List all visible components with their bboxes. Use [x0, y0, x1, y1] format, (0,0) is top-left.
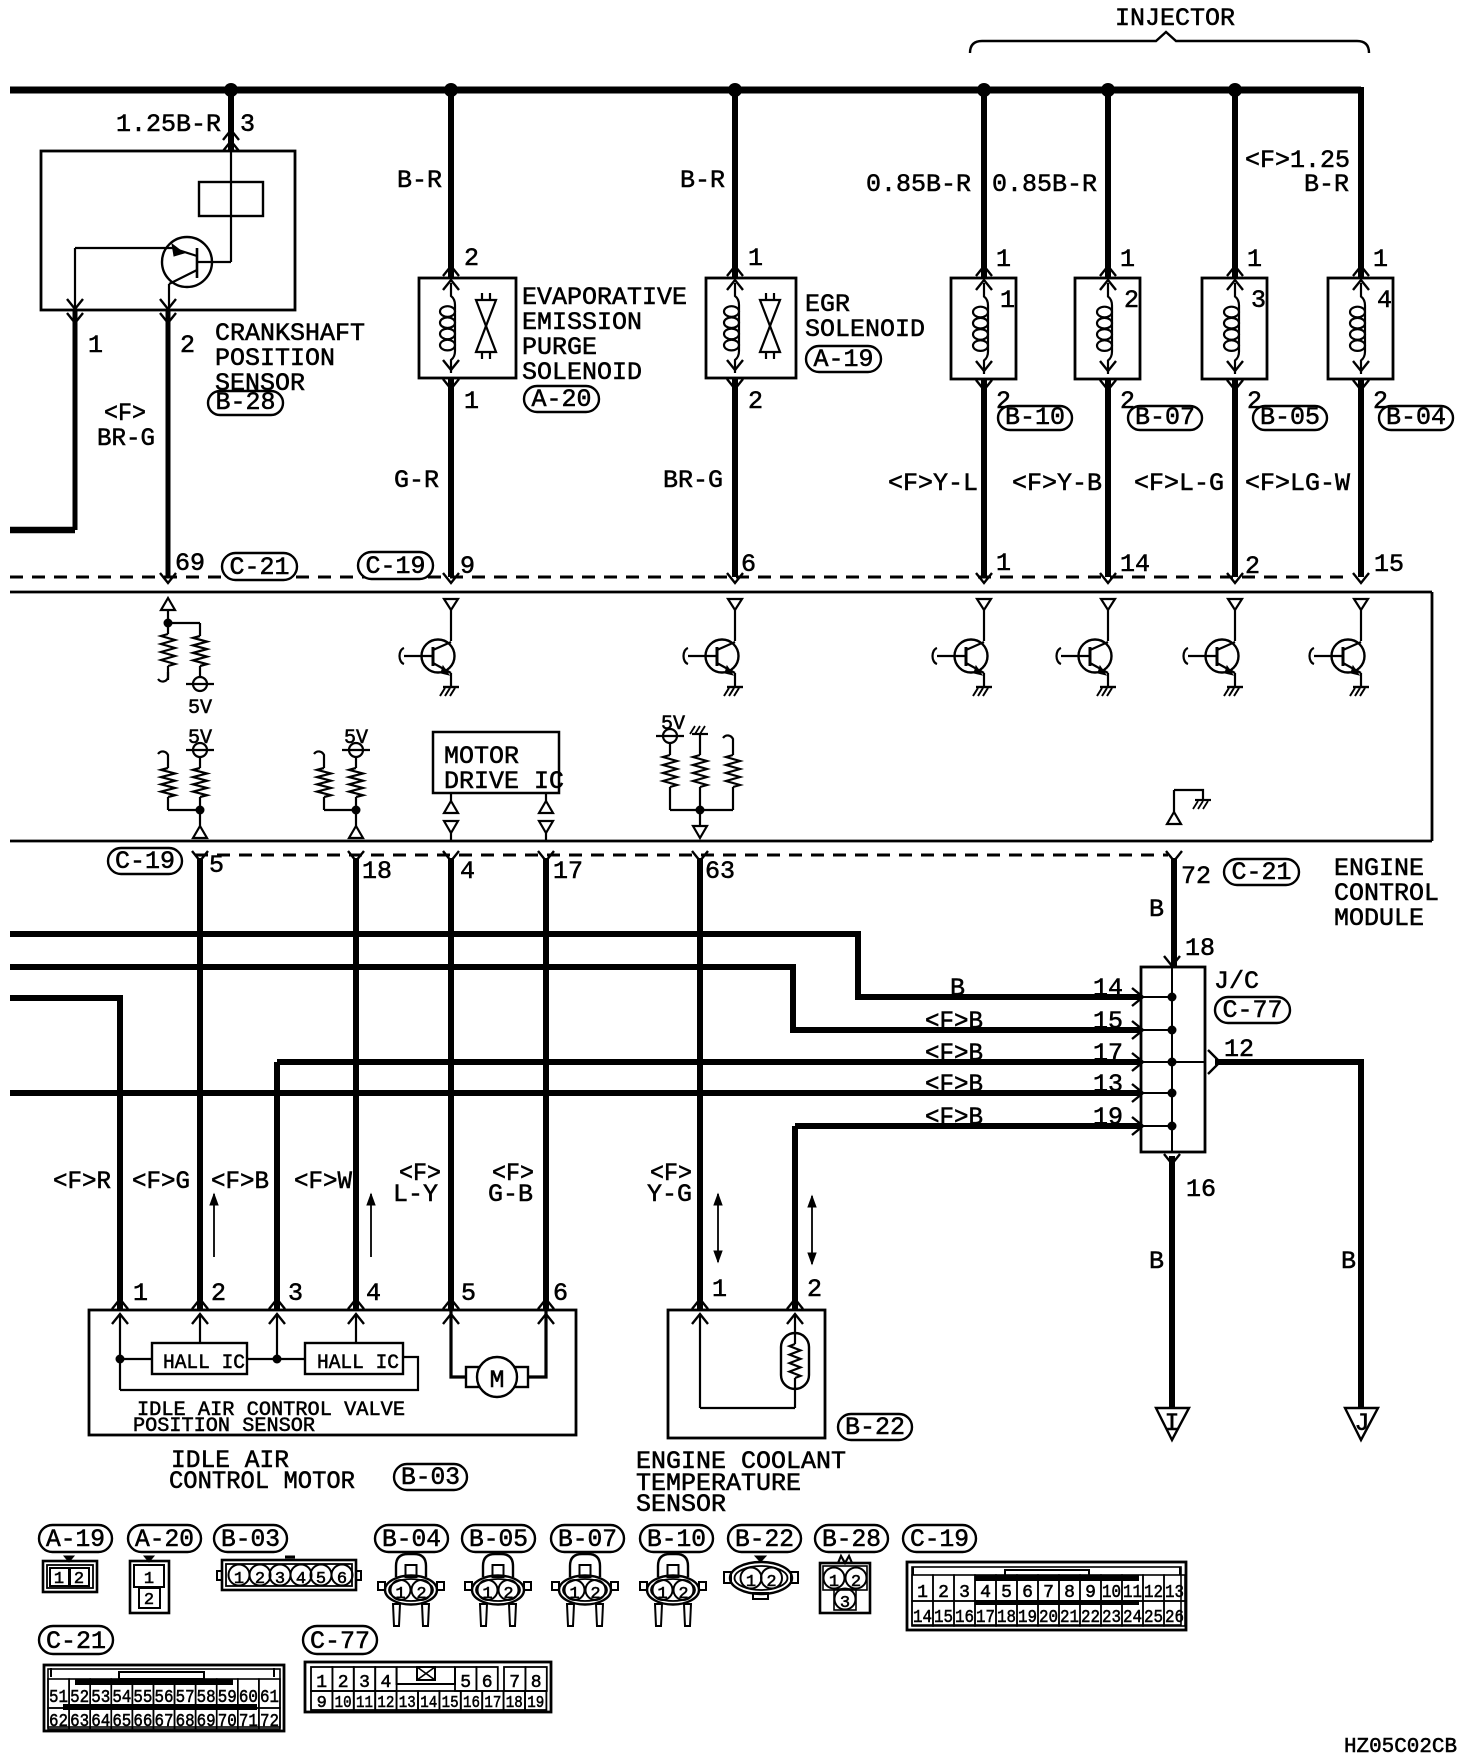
svg-text:18: 18 [1185, 934, 1215, 963]
svg-text:2: 2 [938, 1583, 949, 1603]
svg-text:11: 11 [356, 1694, 373, 1713]
svg-text:60: 60 [239, 1688, 258, 1708]
svg-text:64: 64 [91, 1712, 110, 1732]
svg-text:1: 1 [748, 244, 763, 273]
svg-text:1: 1 [917, 1583, 928, 1603]
svg-text:<F>R: <F>R [53, 1167, 111, 1196]
svg-text:16: 16 [955, 1608, 974, 1628]
svg-text:5: 5 [460, 1673, 471, 1693]
svg-text:B-R: B-R [1304, 170, 1349, 199]
svg-text:SOLENOID: SOLENOID [805, 315, 925, 344]
svg-text:J: J [1354, 1409, 1369, 1438]
svg-text:2: 2 [74, 1570, 84, 1589]
svg-text:6: 6 [741, 550, 756, 579]
svg-text:2: 2 [416, 1585, 426, 1604]
svg-text:18: 18 [506, 1694, 523, 1713]
svg-text:24: 24 [1123, 1608, 1142, 1628]
svg-text:6: 6 [482, 1673, 493, 1693]
svg-text:11: 11 [1123, 1583, 1142, 1603]
svg-text:7: 7 [509, 1673, 520, 1693]
svg-text:1: 1 [133, 1279, 148, 1308]
svg-text:J/C: J/C [1214, 967, 1259, 996]
svg-text:19: 19 [1018, 1608, 1037, 1628]
svg-text:18: 18 [362, 857, 392, 886]
svg-text:B-R: B-R [680, 166, 725, 195]
svg-text:17: 17 [484, 1694, 501, 1713]
svg-text:70: 70 [218, 1712, 237, 1732]
svg-text:B-22: B-22 [845, 1413, 905, 1442]
svg-text:INJECTOR: INJECTOR [1115, 4, 1235, 33]
svg-text:26: 26 [1165, 1608, 1184, 1628]
svg-text:<F>B: <F>B [925, 1103, 983, 1132]
svg-text:<F>B: <F>B [925, 1070, 983, 1099]
svg-text:B-03: B-03 [401, 1463, 460, 1492]
svg-text:B-10: B-10 [647, 1525, 706, 1554]
svg-text:<F>B: <F>B [925, 1007, 983, 1036]
svg-text:B-R: B-R [397, 166, 442, 195]
svg-text:15: 15 [934, 1608, 953, 1628]
svg-text:55: 55 [133, 1688, 152, 1708]
svg-text:<F>B: <F>B [211, 1167, 269, 1196]
svg-text:14: 14 [913, 1608, 932, 1628]
svg-text:63: 63 [70, 1712, 89, 1732]
svg-text:21: 21 [1060, 1608, 1079, 1628]
svg-text:C-77: C-77 [310, 1627, 370, 1656]
svg-text:4: 4 [380, 1673, 391, 1693]
svg-text:1: 1 [395, 1585, 405, 1604]
svg-text:3: 3 [959, 1583, 970, 1603]
svg-text:1: 1 [1120, 245, 1135, 274]
svg-text:13: 13 [1165, 1583, 1184, 1603]
svg-text:62: 62 [49, 1712, 68, 1732]
svg-text:1: 1 [746, 1573, 756, 1592]
svg-text:B-28: B-28 [216, 388, 276, 417]
svg-text:72: 72 [1181, 862, 1211, 891]
svg-text:2: 2 [748, 387, 763, 416]
svg-text:B-03: B-03 [221, 1525, 280, 1554]
svg-text:2: 2 [1245, 552, 1260, 581]
svg-text:MODULE: MODULE [1334, 904, 1424, 933]
svg-text:1: 1 [657, 1585, 667, 1604]
svg-text:4: 4 [296, 1570, 306, 1589]
svg-text:4: 4 [366, 1279, 381, 1308]
svg-text:B-22: B-22 [735, 1525, 794, 1554]
svg-text:<F>L-G: <F>L-G [1134, 469, 1224, 498]
svg-text:B-05: B-05 [1260, 403, 1320, 432]
svg-text:HALL IC: HALL IC [163, 1352, 245, 1375]
svg-text:67: 67 [155, 1712, 174, 1732]
svg-text:2: 2 [678, 1585, 688, 1604]
svg-text:B: B [950, 974, 965, 1003]
svg-text:C-19: C-19 [366, 552, 426, 581]
svg-text:1: 1 [88, 331, 103, 360]
svg-text:57: 57 [176, 1688, 195, 1708]
svg-text:1: 1 [1247, 245, 1262, 274]
svg-text:63: 63 [705, 857, 735, 886]
svg-text:69: 69 [197, 1712, 216, 1732]
svg-text:8: 8 [1064, 1583, 1075, 1603]
svg-text:C-21: C-21 [46, 1627, 106, 1656]
svg-text:0.85B-R: 0.85B-R [866, 170, 971, 199]
svg-text:1: 1 [482, 1585, 492, 1604]
svg-text:14: 14 [420, 1694, 437, 1713]
svg-text:2: 2 [1124, 286, 1139, 315]
svg-text:2: 2 [255, 1570, 265, 1589]
svg-text:2: 2 [464, 244, 479, 273]
svg-text:G-R: G-R [394, 466, 439, 495]
svg-text:B-05: B-05 [469, 1525, 528, 1554]
svg-text:52: 52 [70, 1688, 89, 1708]
svg-text:16: 16 [463, 1694, 480, 1713]
svg-text:CONTROL MOTOR: CONTROL MOTOR [169, 1467, 355, 1496]
svg-text:66: 66 [133, 1712, 152, 1732]
svg-text:B-04: B-04 [1386, 403, 1446, 432]
svg-text:B: B [1149, 1247, 1164, 1276]
svg-text:<F>G: <F>G [132, 1167, 190, 1196]
svg-text:A-20: A-20 [135, 1525, 194, 1554]
svg-text:5: 5 [209, 851, 224, 880]
svg-text:1: 1 [144, 1570, 154, 1589]
svg-text:10: 10 [335, 1694, 352, 1713]
svg-text:C-19: C-19 [115, 847, 175, 876]
svg-text:1: 1 [54, 1570, 64, 1589]
svg-text:SOLENOID: SOLENOID [522, 358, 642, 387]
svg-text:1: 1 [1000, 286, 1015, 315]
svg-text:2: 2 [807, 1275, 822, 1304]
svg-text:M: M [489, 1366, 504, 1395]
svg-text:17: 17 [976, 1608, 995, 1628]
svg-text:6: 6 [1022, 1583, 1033, 1603]
svg-text:58: 58 [197, 1688, 216, 1708]
svg-text:SENSOR: SENSOR [636, 1490, 726, 1519]
svg-text:12: 12 [377, 1694, 394, 1713]
svg-text:2: 2 [211, 1279, 226, 1308]
svg-text:19: 19 [1093, 1103, 1123, 1132]
svg-text:5: 5 [316, 1570, 326, 1589]
svg-text:C-19: C-19 [910, 1525, 969, 1554]
svg-text:C-21: C-21 [1232, 858, 1292, 887]
svg-text:3: 3 [840, 1594, 850, 1613]
svg-text:25: 25 [1144, 1608, 1163, 1628]
svg-text:71: 71 [239, 1712, 258, 1732]
svg-text:4: 4 [1377, 286, 1392, 315]
svg-text:G-B: G-B [488, 1180, 533, 1209]
svg-text:1: 1 [996, 549, 1011, 578]
svg-text:53: 53 [91, 1688, 110, 1708]
svg-text:13: 13 [1093, 1070, 1123, 1099]
svg-text:<F>W: <F>W [294, 1167, 352, 1196]
svg-text:12: 12 [1144, 1583, 1163, 1603]
svg-text:59: 59 [218, 1688, 237, 1708]
svg-text:A-20: A-20 [532, 385, 592, 414]
svg-text:C-21: C-21 [230, 553, 290, 582]
svg-text:16: 16 [1186, 1175, 1216, 1204]
svg-text:A-19: A-19 [814, 345, 874, 374]
svg-text:0.85B-R: 0.85B-R [992, 170, 1097, 199]
svg-text:22: 22 [1081, 1608, 1100, 1628]
svg-text:BR-G: BR-G [97, 424, 155, 453]
svg-text:17: 17 [553, 857, 583, 886]
svg-text:2: 2 [180, 331, 195, 360]
svg-text:1: 1 [464, 387, 479, 416]
svg-text:<F>Y-B: <F>Y-B [1012, 469, 1102, 498]
svg-text:C-77: C-77 [1223, 996, 1283, 1025]
svg-text:1: 1 [316, 1673, 327, 1693]
svg-text:14: 14 [1093, 974, 1123, 1003]
svg-text:2: 2 [590, 1585, 600, 1604]
svg-text:5: 5 [461, 1279, 476, 1308]
svg-text:18: 18 [997, 1608, 1016, 1628]
svg-text:B-07: B-07 [1135, 403, 1195, 432]
svg-text:3: 3 [240, 110, 255, 139]
svg-text:15: 15 [1374, 550, 1404, 579]
svg-text:5V: 5V [344, 727, 368, 750]
svg-text:5V: 5V [188, 727, 212, 750]
svg-text:69: 69 [175, 549, 205, 578]
svg-text:14: 14 [1120, 550, 1150, 579]
svg-text:3: 3 [359, 1673, 370, 1693]
svg-text:56: 56 [155, 1688, 174, 1708]
svg-text:BR-G: BR-G [663, 466, 723, 495]
svg-text:B: B [1341, 1247, 1356, 1276]
svg-text:15: 15 [1093, 1007, 1123, 1036]
svg-text:B-28: B-28 [822, 1525, 881, 1554]
svg-text:DRIVE IC: DRIVE IC [444, 767, 564, 796]
svg-text:19: 19 [527, 1694, 544, 1713]
svg-text:61: 61 [260, 1688, 279, 1708]
svg-text:23: 23 [1102, 1608, 1121, 1628]
svg-text:5: 5 [1001, 1583, 1012, 1603]
svg-text:68: 68 [176, 1712, 195, 1732]
svg-text:3: 3 [288, 1279, 303, 1308]
svg-text:6: 6 [337, 1570, 347, 1589]
svg-text:1: 1 [712, 1275, 727, 1304]
svg-text:1.25B-R: 1.25B-R [116, 110, 221, 139]
svg-text:<F>B: <F>B [925, 1039, 983, 1068]
svg-text:2: 2 [144, 1591, 154, 1610]
svg-text:10: 10 [1102, 1583, 1121, 1603]
svg-text:6: 6 [553, 1279, 568, 1308]
svg-text:HZ05C02CB: HZ05C02CB [1344, 1736, 1457, 1754]
svg-text:2: 2 [503, 1585, 513, 1604]
svg-text:72: 72 [260, 1712, 279, 1732]
svg-text:51: 51 [49, 1688, 68, 1708]
svg-text:9: 9 [317, 1694, 327, 1713]
svg-text:1: 1 [234, 1570, 244, 1589]
svg-text:17: 17 [1093, 1039, 1123, 1068]
svg-text:2: 2 [766, 1573, 776, 1592]
svg-text:POSITION SENSOR: POSITION SENSOR [133, 1415, 315, 1438]
svg-text:1: 1 [1373, 245, 1388, 274]
svg-text:B: B [1149, 895, 1164, 924]
svg-text:4: 4 [460, 857, 475, 886]
svg-text:9: 9 [460, 552, 475, 581]
svg-text:I: I [1164, 1409, 1179, 1438]
svg-text:65: 65 [112, 1712, 131, 1732]
svg-text:4: 4 [980, 1583, 991, 1603]
svg-text:20: 20 [1039, 1608, 1058, 1628]
svg-text:B-10: B-10 [1005, 403, 1065, 432]
svg-text:7: 7 [1043, 1583, 1054, 1603]
svg-text:<F>Y-L: <F>Y-L [888, 469, 978, 498]
svg-text:B-04: B-04 [382, 1525, 441, 1554]
svg-text:1: 1 [569, 1585, 579, 1604]
svg-text:9: 9 [1085, 1583, 1096, 1603]
svg-text:B-07: B-07 [558, 1525, 617, 1554]
svg-text:L-Y: L-Y [393, 1180, 438, 1209]
svg-text:<F>LG-W: <F>LG-W [1245, 469, 1350, 498]
svg-text:Y-G: Y-G [647, 1180, 692, 1209]
svg-text:8: 8 [531, 1673, 542, 1693]
svg-text:13: 13 [399, 1694, 416, 1713]
svg-text:3: 3 [275, 1570, 285, 1589]
svg-text:HALL IC: HALL IC [317, 1352, 399, 1375]
svg-text:3: 3 [1251, 286, 1266, 315]
svg-text:1: 1 [996, 245, 1011, 274]
svg-text:2: 2 [338, 1673, 349, 1693]
svg-text:54: 54 [112, 1688, 131, 1708]
svg-text:15: 15 [442, 1694, 459, 1713]
svg-text:5V: 5V [188, 697, 212, 720]
svg-text:A-19: A-19 [46, 1525, 105, 1554]
